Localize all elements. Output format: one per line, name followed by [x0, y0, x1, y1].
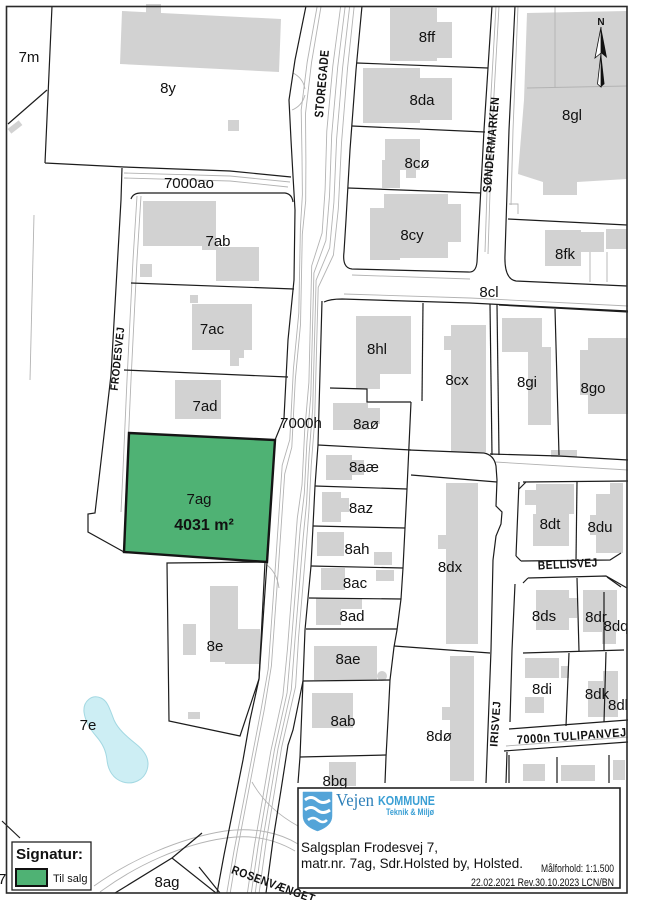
- svg-text:7ab: 7ab: [205, 233, 230, 250]
- svg-text:8e: 8e: [207, 638, 224, 655]
- svg-text:8da: 8da: [409, 92, 435, 109]
- svg-text:8di: 8di: [532, 681, 552, 698]
- svg-text:Salgsplan Frodesvej 7,: Salgsplan Frodesvej 7,: [301, 839, 438, 855]
- svg-text:8ds: 8ds: [532, 608, 556, 625]
- svg-text:Til salg: Til salg: [53, 873, 87, 885]
- svg-text:8cø: 8cø: [404, 155, 429, 172]
- svg-text:8dø: 8dø: [426, 728, 452, 745]
- svg-text:matr.nr. 7ag, Sdr.Holsted by,: matr.nr. 7ag, Sdr.Holsted by, Holsted.: [301, 855, 523, 871]
- svg-text:8cl: 8cl: [479, 284, 498, 301]
- svg-text:8gi: 8gi: [517, 374, 537, 391]
- svg-text:8ab: 8ab: [330, 713, 355, 730]
- svg-text:8az: 8az: [349, 500, 373, 517]
- svg-text:8du: 8du: [587, 519, 612, 536]
- svg-text:8ah: 8ah: [344, 541, 369, 558]
- svg-text:8y: 8y: [160, 80, 176, 97]
- svg-text:8ae: 8ae: [335, 651, 360, 668]
- svg-text:4031 m²: 4031 m²: [174, 517, 234, 534]
- svg-text:8cx: 8cx: [445, 372, 469, 389]
- svg-text:N: N: [597, 17, 604, 28]
- svg-text:Målforhold: 1:1.500: Målforhold: 1:1.500: [541, 863, 614, 875]
- svg-text:8dq: 8dq: [603, 618, 628, 635]
- svg-text:7e: 7e: [80, 717, 97, 734]
- svg-text:8ag: 8ag: [154, 874, 179, 891]
- svg-text:KOMMUNE: KOMMUNE: [378, 794, 435, 808]
- svg-text:8gl: 8gl: [562, 107, 582, 124]
- svg-text:7ag: 7ag: [186, 491, 211, 508]
- svg-text:7: 7: [0, 871, 6, 888]
- svg-text:8dl: 8dl: [608, 697, 628, 714]
- svg-text:8ff: 8ff: [419, 29, 436, 46]
- svg-text:Teknik & Miljø: Teknik & Miljø: [386, 807, 434, 817]
- svg-text:8go: 8go: [580, 380, 605, 397]
- svg-text:8ac: 8ac: [343, 575, 368, 592]
- svg-text:Signatur:: Signatur:: [16, 846, 83, 863]
- svg-text:7ad: 7ad: [192, 398, 217, 415]
- svg-text:22.02.2021 Rev.30.10.2023 LCN/: 22.02.2021 Rev.30.10.2023 LCN/BN: [471, 877, 614, 889]
- svg-text:7ac: 7ac: [200, 321, 225, 338]
- svg-text:8hl: 8hl: [367, 341, 387, 358]
- svg-text:8ad: 8ad: [339, 608, 364, 625]
- svg-text:7m: 7m: [19, 49, 40, 66]
- svg-text:8aø: 8aø: [353, 416, 379, 433]
- svg-text:8fk: 8fk: [555, 246, 576, 263]
- svg-text:8cy: 8cy: [400, 227, 424, 244]
- svg-text:7000ao: 7000ao: [164, 175, 214, 192]
- svg-text:8dx: 8dx: [438, 559, 463, 576]
- svg-text:8aæ: 8aæ: [349, 459, 379, 476]
- svg-text:8dt: 8dt: [540, 516, 562, 533]
- svg-text:Vejen: Vejen: [336, 790, 374, 810]
- svg-text:7000h: 7000h: [280, 415, 322, 432]
- svg-text:8dk: 8dk: [585, 686, 610, 703]
